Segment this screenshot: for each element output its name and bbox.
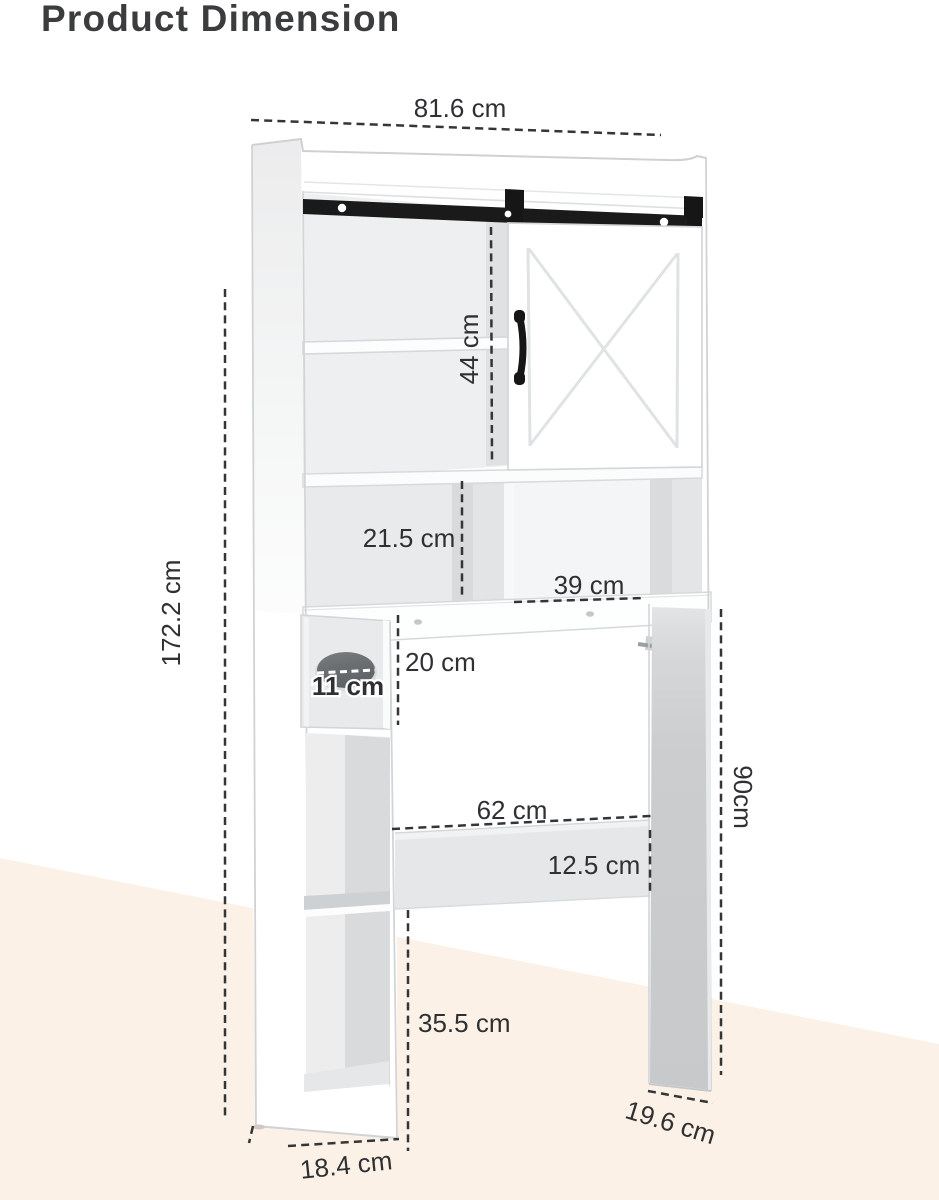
svg-text:21.5 cm: 21.5 cm: [363, 523, 456, 553]
svg-text:11 cm: 11 cm: [312, 671, 384, 701]
svg-text:12.5 cm: 12.5 cm: [548, 850, 641, 880]
svg-text:Product Dimension: Product Dimension: [41, 0, 401, 39]
svg-text:39 cm: 39 cm: [554, 570, 625, 600]
svg-text:44 cm: 44 cm: [454, 314, 484, 385]
svg-text:35.5 cm: 35.5 cm: [418, 1008, 511, 1038]
svg-text:90cm: 90cm: [728, 765, 758, 829]
svg-text:62 cm: 62 cm: [477, 795, 548, 825]
svg-text:172.2 cm: 172.2 cm: [156, 560, 186, 667]
svg-text:81.6 cm: 81.6 cm: [414, 93, 507, 123]
svg-text:20 cm: 20 cm: [405, 647, 476, 677]
